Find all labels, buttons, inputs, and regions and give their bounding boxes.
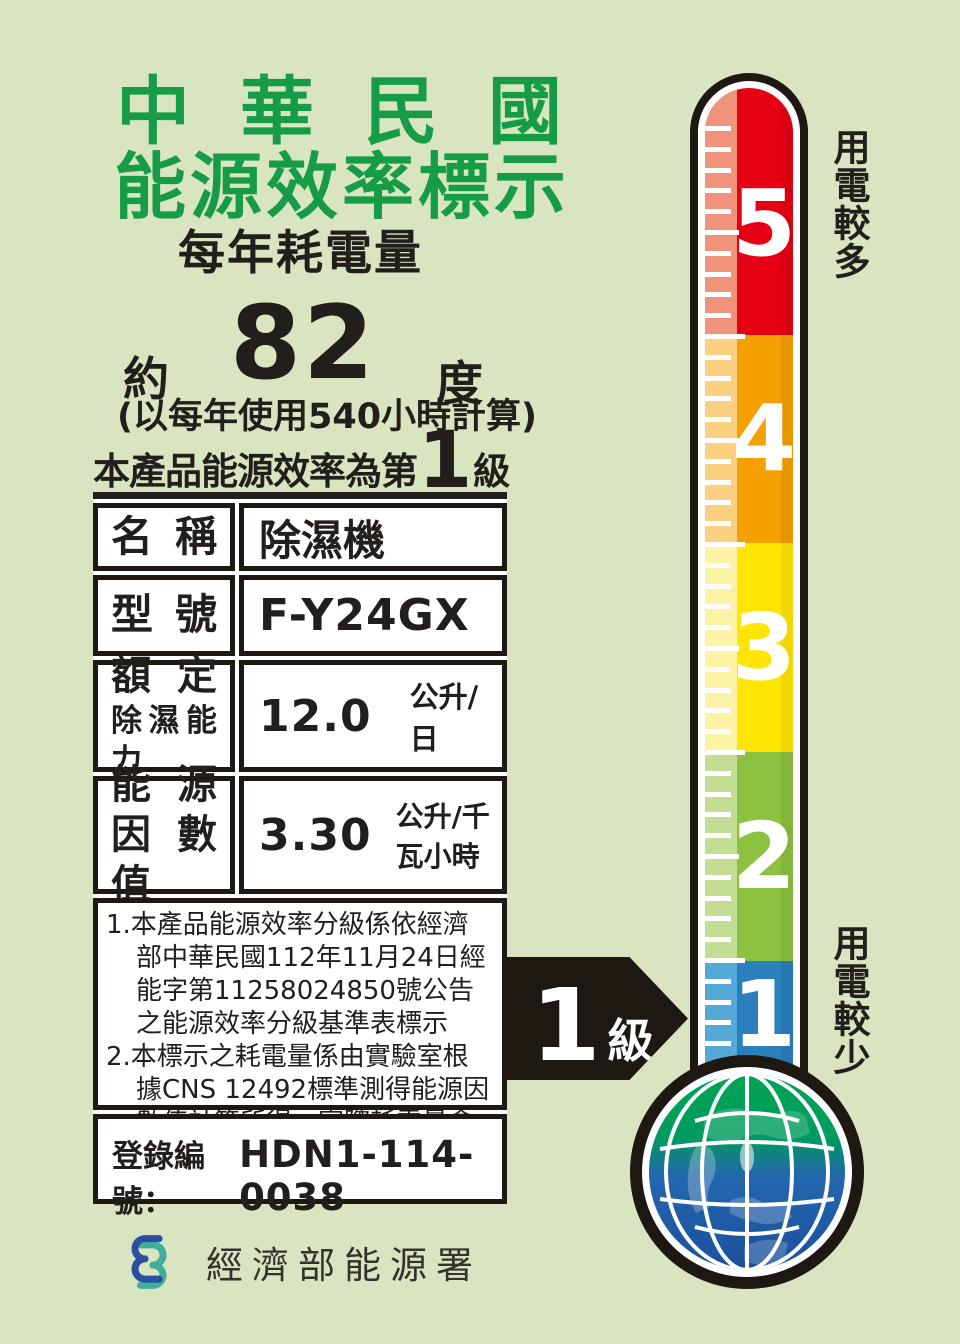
thermo-tick <box>705 168 731 173</box>
thermo-tick <box>705 292 731 297</box>
thermo-level-5-number: 5 <box>735 88 793 335</box>
thermo-tick <box>705 667 731 672</box>
registration-number: HDN1-114-0038 <box>239 1133 502 1219</box>
thermo-tick <box>705 334 745 339</box>
registration-box: 登錄編號： HDN1-114-0038 <box>93 1114 507 1204</box>
thermo-tick <box>705 812 731 817</box>
thermo-level-4-number: 4 <box>735 335 793 543</box>
row-capacity-label-line1: 額定 <box>111 651 217 701</box>
row-name-value: 除濕機 <box>259 507 385 568</box>
row-model-value-cell: F-Y24GX <box>239 575 507 656</box>
thermo-tick <box>705 875 731 880</box>
grade-arrow-number: 1 <box>531 988 601 1064</box>
thermo-tick <box>705 251 731 256</box>
thermo-tick <box>705 480 731 485</box>
thermo-tick <box>705 688 731 693</box>
thermo-level-3-number: 3 <box>735 543 793 752</box>
thermo-tick <box>705 958 745 963</box>
thermo-tick <box>705 500 731 505</box>
thermo-tick <box>705 979 731 984</box>
table-row-name: 名稱 除濕機 <box>93 503 507 571</box>
thermo-tick <box>705 708 731 713</box>
row-capacity-value: 12.0 <box>259 691 372 742</box>
row-model-value: F-Y24GX <box>259 590 470 641</box>
agency-footer: 經濟部能源署 <box>120 1234 482 1290</box>
thermo-level-2-number: 2 <box>735 752 793 961</box>
row-capacity-label-cell: 額定 除濕能力 <box>93 660 235 772</box>
row-model-label-cell: 型號 <box>93 575 235 656</box>
thermo-tick <box>705 937 731 942</box>
thermo-tick <box>705 563 731 568</box>
grade-heading-number: 1 <box>418 431 472 492</box>
row-name-label: 名稱 <box>111 512 217 562</box>
row-ef-label-line1: 能源 <box>111 760 217 810</box>
thermo-tick <box>705 396 731 401</box>
row-ef-value-cell: 3.30 公升/千瓦小時 <box>239 776 507 894</box>
agency-name: 經濟部能源署 <box>206 1235 482 1289</box>
row-ef-label-cell: 能源 因數值 <box>93 776 235 894</box>
thermo-tick <box>705 916 731 921</box>
thermo-tick <box>705 521 731 526</box>
thermo-tick <box>705 230 739 235</box>
grade-heading-suffix: 級 <box>473 453 510 492</box>
row-capacity-value-cell: 12.0 公升/日 <box>239 660 507 772</box>
thermo-tick <box>705 1020 731 1025</box>
thermo-tick <box>705 1000 731 1005</box>
thermo-tick <box>705 147 731 152</box>
grade-heading-prefix: 本產品能源效率為第 <box>93 453 417 492</box>
table-row-capacity: 額定 除濕能力 12.0 公升/日 <box>93 660 507 772</box>
thermo-tick <box>705 355 731 360</box>
thermo-tick <box>705 646 739 651</box>
row-ef-unit: 公升/千瓦小時 <box>396 795 502 875</box>
thermo-tick <box>705 542 745 547</box>
thermometer-scale: 54321 <box>705 88 793 1078</box>
grade-heading: 本產品能源效率為第 1 級 <box>93 424 507 492</box>
thermo-tick <box>705 750 745 755</box>
note-1: 1.本產品能源效率分級係依經濟部中華民國112年11月24日經能字第112580… <box>106 909 494 1041</box>
heading-underline <box>93 492 507 499</box>
thermo-tick <box>705 833 731 838</box>
spec-table: 名稱 除濕機 型號 F-Y24GX 額定 除濕能力 12.0 公升/日 <box>93 492 507 1204</box>
table-row-model: 型號 F-Y24GX <box>93 575 507 656</box>
thermo-tick <box>705 209 731 214</box>
table-row-energy-factor: 能源 因數值 3.30 公升/千瓦小時 <box>93 776 507 894</box>
notes-box: 1.本產品能源效率分級係依經濟部中華民國112年11月24日經能字第112580… <box>93 898 507 1110</box>
registration-label: 登錄編號： <box>112 1131 231 1221</box>
thermo-tick <box>705 771 731 776</box>
agency-logo-icon <box>120 1234 178 1290</box>
thermo-tick <box>705 188 731 193</box>
row-ef-value: 3.30 <box>259 810 372 861</box>
thermo-tick <box>705 126 731 131</box>
energy-label: 中華民國 能源效率標示 每年耗電量 約 82 度 (以每年使用540小時計算) … <box>0 0 960 1344</box>
thermo-tick <box>705 896 731 901</box>
row-name-value-cell: 除濕機 <box>239 503 507 571</box>
thermo-tick <box>705 438 739 443</box>
thermo-tick <box>705 459 731 464</box>
thermo-tick <box>705 625 731 630</box>
row-ef-label-line2: 因數值 <box>111 810 217 910</box>
thermo-tick <box>705 729 731 734</box>
thermo-tick <box>705 417 731 422</box>
globe-glare <box>740 1142 754 1172</box>
thermo-tick <box>705 604 731 609</box>
thermo-tick <box>705 1041 731 1046</box>
row-model-label: 型號 <box>111 590 217 640</box>
thermometer-tube: 54321 <box>690 73 808 1093</box>
annual-consumption-heading: 每年耗電量 <box>178 214 423 283</box>
thermo-tick <box>705 313 731 318</box>
more-power-label: 用電較多 <box>830 128 867 280</box>
row-capacity-unit: 公升/日 <box>410 674 502 758</box>
globe-icon <box>626 1051 868 1293</box>
thermo-tick <box>705 272 731 277</box>
thermo-tick <box>705 854 739 859</box>
thermo-tick <box>705 584 731 589</box>
thermo-tick <box>705 792 731 797</box>
consumption-value: 82 <box>230 293 376 395</box>
row-name-label-cell: 名稱 <box>93 503 235 571</box>
thermo-tick <box>705 376 731 381</box>
